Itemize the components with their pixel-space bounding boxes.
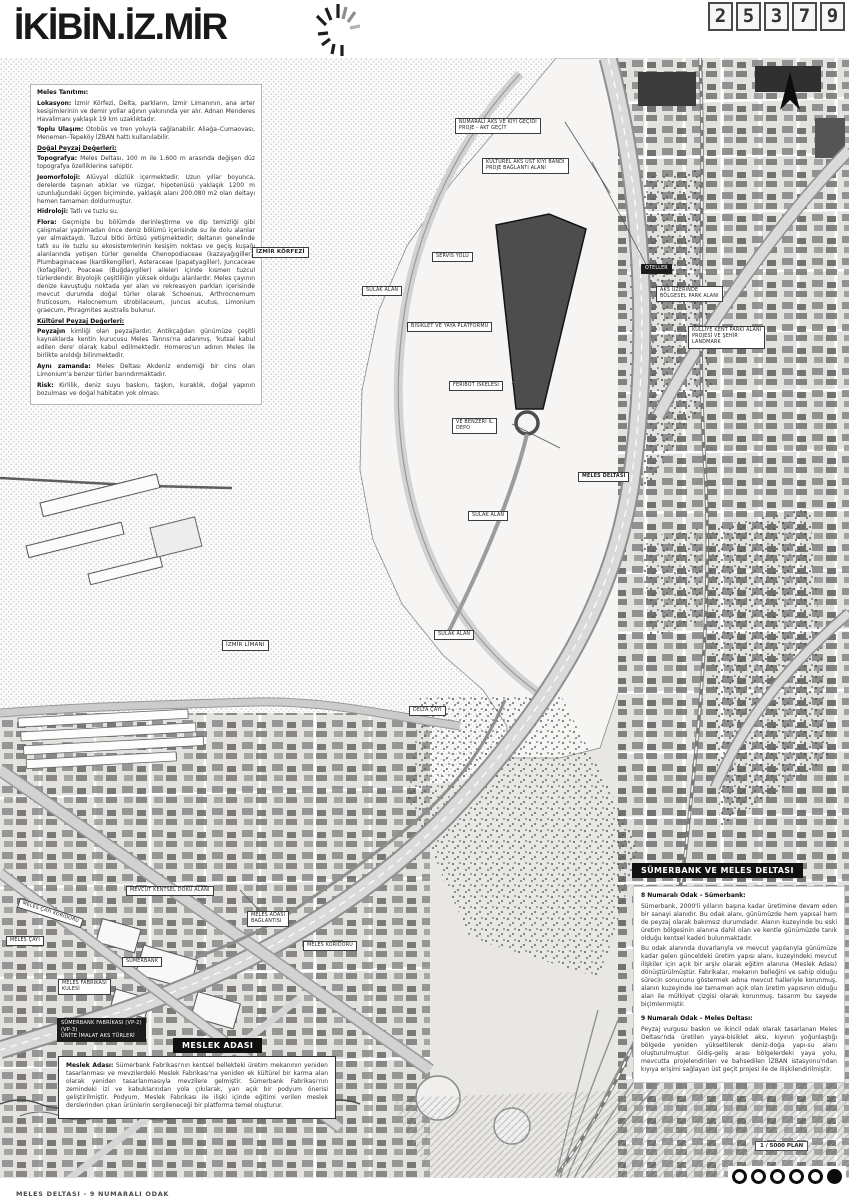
map-label-depo: VE BENZERİ İL DEPO bbox=[452, 418, 497, 434]
page-dot-active bbox=[827, 1169, 842, 1184]
entry-digit: 3 bbox=[764, 2, 789, 31]
map-label-izmir-limani: İZMİR LİMANI bbox=[222, 640, 269, 651]
entry-digit: 2 bbox=[708, 2, 733, 31]
page-dot bbox=[751, 1169, 766, 1184]
map-label-sumerbank: SÜMERBANK bbox=[122, 957, 162, 967]
map-label-meles-cayi: MELES ÇAYI bbox=[6, 936, 44, 946]
entry-digit: 5 bbox=[736, 2, 761, 31]
map-label-fabrika: MELES FABRİKASI KULESİ bbox=[58, 979, 111, 995]
page-dot bbox=[789, 1169, 804, 1184]
map-label-sulak-alan-1: SULAK ALAN bbox=[362, 286, 402, 296]
map-label-oteller: OTELLER bbox=[641, 264, 672, 274]
page-dot bbox=[732, 1169, 747, 1184]
page-indicator bbox=[728, 1166, 846, 1187]
map-label-meles-deltasi: MELES DELTASI bbox=[578, 472, 629, 482]
map-label-meles-koridoru: MELES KORİDORU bbox=[303, 941, 357, 951]
board-header: İKİBİN.İZ.MİR 2 5 3 7 9 bbox=[0, 0, 849, 58]
footer-caption: MELES DELTASI - 9 NUMARALI ODAK bbox=[16, 1190, 169, 1198]
sumerbank-panel: 8 Numaralı Odak – Sümerbank: Sümerbank, … bbox=[633, 886, 845, 1083]
logo-text: İKİBİN.İZ.MİR bbox=[14, 6, 227, 48]
map-label-sulak-alan-2: SULAK ALAN bbox=[468, 511, 508, 521]
map-label-bisiklet-platformu: BİSİKLET VE YAYA PLATFORMU bbox=[407, 322, 492, 332]
map-label-izmir-korfezi: İZMİR KÖRFEZİ bbox=[252, 247, 309, 258]
map-label-sulak-alan-3: SULAK ALAN bbox=[434, 630, 474, 640]
sunburst-icon bbox=[310, 2, 366, 58]
map-label-mevcut-doku: MEVCUT KENTSEL DOKU ALANI bbox=[126, 886, 214, 896]
competition-board: İKİBİN.İZ.MİR 2 5 3 7 9 bbox=[0, 0, 849, 1203]
map-label-servis-yolu: SERVİS YOLU bbox=[432, 252, 473, 262]
entry-digit: 9 bbox=[820, 2, 845, 31]
map-label-vp-box: SÜMERBANK FABRİKASI (VP-2) (VP-3) ÜNİTE … bbox=[57, 1018, 146, 1042]
map-label-feribot: FERİBOT İSKELESİ bbox=[449, 381, 503, 391]
map-label-callout2: KÜLTÜREL AKS ÜST KIYI BANDI PROJE BAĞLAN… bbox=[482, 158, 569, 174]
entry-number: 2 5 3 7 9 bbox=[708, 2, 845, 31]
map-label-aks-parki: AKS ÜZERİNDE BÖLGESEL PARK ALANI bbox=[656, 286, 723, 302]
section-header-sumerbank: SÜMERBANK VE MELES DELTASI bbox=[632, 863, 803, 878]
map-label-delta-cayi: DELTA ÇAYI bbox=[409, 706, 446, 716]
map-label-callout1: NUMARALI AKS VE KIYI GEÇİDİ PROJE - AKT … bbox=[455, 118, 541, 134]
meslek-adasi-panel: Meslek Adası: Sümerbank Fabrikası'nın ke… bbox=[58, 1056, 336, 1119]
page-dot bbox=[808, 1169, 823, 1184]
map-label-adasi-baglanti: MELES ADASI BAĞLANTISI bbox=[247, 911, 289, 927]
info-panel: Meles Tanıtımı: Lokasyon: İzmir Körfezi,… bbox=[30, 84, 262, 405]
entry-digit: 7 bbox=[792, 2, 817, 31]
map-label-landmark: KÜLLİYE KENT PARKI ALANI PROJESİ VE ŞEHİ… bbox=[688, 326, 765, 349]
scale-label: 1 / 5000 PLAN bbox=[755, 1141, 808, 1151]
section-header-meslek-adasi: MESLEK ADASI bbox=[173, 1038, 262, 1053]
page-dot bbox=[770, 1169, 785, 1184]
